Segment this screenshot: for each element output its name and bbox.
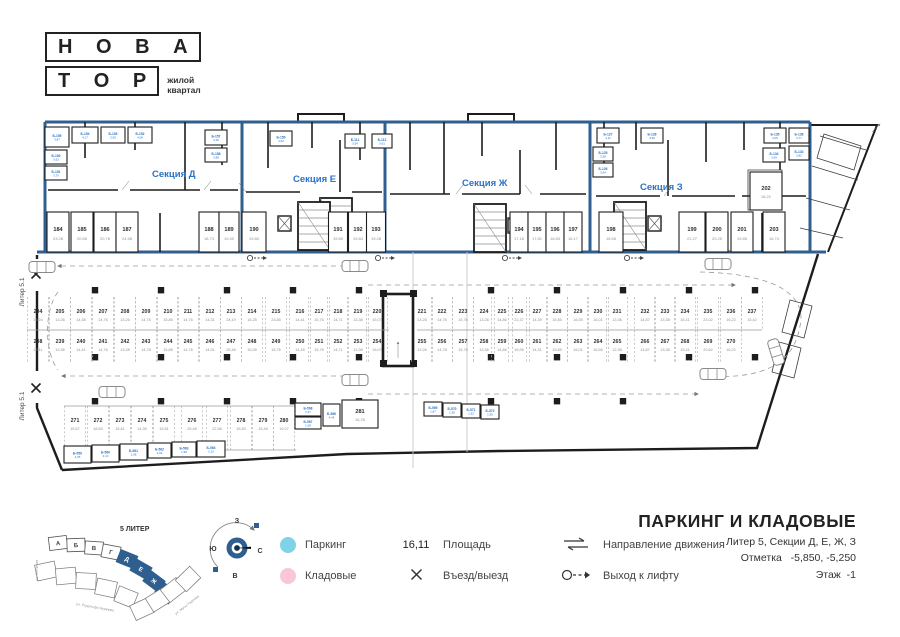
svg-text:254: 254 [373, 339, 382, 345]
parking-stall-245[interactable]: 24514,76 [178, 330, 199, 363]
svg-text:206: 206 [77, 309, 86, 315]
storage-room-281[interactable]: 28116,25 [342, 400, 378, 428]
svg-text:196: 196 [550, 227, 559, 233]
svg-text:244: 244 [164, 339, 173, 345]
parking-stall-233[interactable]: 23313,38 [655, 297, 676, 330]
svg-text:251: 251 [315, 339, 324, 345]
svg-text:14,76: 14,76 [437, 348, 447, 352]
svg-text:240: 240 [77, 339, 86, 345]
svg-text:256: 256 [438, 339, 447, 345]
svg-text:13,26: 13,26 [120, 318, 130, 322]
svg-text:15,24: 15,24 [33, 318, 43, 322]
parking-stall-257[interactable]: 25715,76 [453, 330, 474, 363]
svg-text:234: 234 [681, 309, 690, 315]
svg-text:1,92: 1,92 [468, 412, 474, 416]
svg-text:16,22: 16,22 [726, 348, 736, 352]
storage-room-201[interactable]: 20119,85 [731, 212, 753, 252]
svg-text:230: 230 [594, 309, 603, 315]
cellar-room-Б-572[interactable]: Б-5721,95 [481, 405, 499, 419]
cellar-room-Б-560[interactable]: Б-5602,10 [92, 445, 119, 462]
legend-storage: Кладовые [280, 567, 385, 585]
svg-text:14,71: 14,71 [333, 318, 343, 322]
svg-text:242: 242 [121, 339, 130, 345]
cellar-room-Б-111[interactable]: Б-1113,54 [345, 134, 365, 148]
svg-text:189: 189 [224, 227, 233, 233]
svg-text:25,48: 25,48 [187, 427, 197, 431]
svg-text:213: 213 [227, 309, 236, 315]
parking-stall-278[interactable]: 27815,83 [231, 406, 252, 450]
cellar-room-Б-126[interactable]: Б-1263,64 [593, 163, 613, 177]
svg-text:210: 210 [164, 309, 173, 315]
storage-room-189[interactable]: 18919,40 [219, 212, 239, 252]
svg-text:264: 264 [594, 339, 603, 345]
svg-text:19,28: 19,28 [371, 236, 382, 241]
svg-text:16,55: 16,55 [593, 348, 603, 352]
storage-dot-icon [280, 568, 296, 584]
compass: З Ю С В [209, 518, 262, 580]
legend-parking: Паркинг [280, 536, 385, 554]
svg-text:4,05: 4,05 [772, 136, 778, 140]
parking-stall-263[interactable]: 26316,01 [568, 330, 589, 363]
storage-room-190[interactable]: 19019,80 [242, 212, 266, 252]
cellar-room-Б-155[interactable]: Б-1553,87 [45, 127, 69, 147]
entry-cross-icon [32, 384, 41, 393]
svg-text:14,86: 14,86 [497, 318, 507, 322]
svg-text:192: 192 [353, 227, 362, 233]
svg-text:275: 275 [160, 418, 169, 424]
parking-stall-221[interactable]: 22113,26 [412, 297, 433, 330]
svg-text:23,02: 23,02 [703, 318, 713, 322]
cellar-room-Б-569[interactable]: Б-5691,87 [424, 402, 442, 416]
svg-text:198: 198 [606, 227, 615, 233]
svg-text:15,07: 15,07 [372, 318, 382, 322]
cellar-room-Б-134[interactable]: Б-1343,69 [763, 148, 785, 162]
svg-text:247: 247 [227, 339, 236, 345]
svg-text:231: 231 [613, 309, 622, 315]
svg-text:245: 245 [184, 339, 193, 345]
storage-room-198[interactable]: 19816,55 [599, 212, 623, 252]
svg-text:278: 278 [237, 418, 246, 424]
legend-parking-label: Паркинг [305, 539, 346, 551]
stair-core [298, 202, 330, 250]
svg-text:207: 207 [99, 309, 108, 315]
svg-text:186: 186 [100, 227, 109, 233]
parking-stall-269[interactable]: 26920,62 [698, 330, 719, 363]
svg-text:249: 249 [272, 339, 281, 345]
svg-text:216: 216 [296, 309, 305, 315]
storage-room-188[interactable]: 18818,73 [199, 212, 219, 252]
svg-text:194: 194 [514, 227, 524, 233]
svg-text:16,01: 16,01 [593, 318, 603, 322]
svg-text:1,90: 1,90 [449, 411, 455, 415]
svg-text:19,80: 19,80 [249, 236, 260, 241]
svg-text:228: 228 [553, 309, 562, 315]
storage-room-196[interactable]: 19616,83 [546, 212, 564, 252]
parking-stall-248[interactable]: 24815,05 [242, 330, 263, 363]
svg-text:15,05: 15,05 [247, 348, 257, 352]
storage-room-187[interactable]: 18724,58 [116, 212, 138, 252]
parking-stall-271[interactable]: 27115,67 [65, 406, 86, 450]
svg-text:209: 209 [142, 309, 151, 315]
lift-exit-marks [247, 255, 644, 260]
svg-text:232: 232 [641, 309, 650, 315]
svg-text:272: 272 [94, 418, 103, 424]
svg-text:13,11: 13,11 [33, 348, 42, 352]
svg-text:14,76: 14,76 [183, 348, 193, 352]
svg-text:14,51: 14,51 [205, 348, 215, 352]
cellar-room-Б-570[interactable]: Б-5701,90 [443, 403, 461, 417]
parking-stall-211[interactable]: 21114,76 [178, 297, 199, 330]
svg-text:226: 226 [515, 309, 524, 315]
parking-stall-267[interactable]: 26713,38 [655, 330, 676, 363]
parking-stall-217[interactable]: 21715,76 [309, 297, 330, 330]
cellar-room-Б-563[interactable]: Б-5631,98 [172, 442, 196, 457]
cellar-room-Б-128[interactable]: Б-1283,96 [641, 128, 663, 143]
storage-room-197[interactable]: 19716,17 [564, 212, 582, 252]
page: Н О В А Т О Р жилойквартал [0, 0, 900, 637]
svg-text:1,97: 1,97 [305, 410, 311, 414]
svg-text:204: 204 [34, 309, 43, 315]
storage-room-185[interactable]: 18520,85 [71, 212, 93, 252]
svg-text:215: 215 [272, 309, 281, 315]
parking-stall-255[interactable]: 25513,26 [412, 330, 433, 363]
svg-text:15,76: 15,76 [271, 348, 281, 352]
parking-stall-266[interactable]: 26614,87 [635, 330, 656, 363]
cellar-room-Б-133[interactable]: Б-1333,82 [789, 146, 809, 160]
svg-text:13,36: 13,36 [612, 318, 622, 322]
svg-text:267: 267 [661, 339, 670, 345]
svg-text:19,07: 19,07 [279, 427, 289, 431]
parking-stall-213[interactable]: 21324,19 [221, 297, 242, 330]
cellar-room-Б-159[interactable]: Б-1594,02 [270, 131, 292, 146]
cellar-room-Б-158[interactable]: Б-1583,88 [205, 148, 227, 162]
svg-text:13,26: 13,26 [479, 318, 489, 322]
svg-text:18,83: 18,83 [93, 427, 103, 431]
svg-text:4,25: 4,25 [213, 138, 219, 142]
svg-text:15,76: 15,76 [314, 318, 324, 322]
parking-stall-280[interactable]: 28019,07 [274, 406, 295, 450]
svg-text:22,58: 22,58 [212, 427, 222, 431]
cellar-room-Б-152[interactable]: Б-1524,08 [128, 127, 152, 143]
cellar-room-Б-153[interactable]: Б-1533,95 [101, 127, 125, 143]
storage-room-192[interactable]: 19219,84 [349, 212, 368, 252]
svg-text:14,71: 14,71 [333, 348, 343, 352]
cellar-room-Б-571[interactable]: Б-5711,92 [462, 404, 480, 418]
parking-stall-252[interactable]: 25214,71 [328, 330, 349, 363]
svg-text:14,41: 14,41 [295, 318, 305, 322]
svg-text:258: 258 [480, 339, 489, 345]
svg-text:2,08: 2,08 [131, 453, 137, 457]
parking-stall-231[interactable]: 23113,36 [607, 297, 628, 330]
svg-text:17,16: 17,16 [514, 236, 525, 241]
svg-text:22,37: 22,37 [514, 318, 524, 322]
parking-stall-235[interactable]: 23523,02 [698, 297, 719, 330]
svg-text:14,76: 14,76 [98, 348, 108, 352]
svg-text:14,87: 14,87 [640, 318, 650, 322]
svg-text:203: 203 [769, 227, 778, 233]
svg-text:238: 238 [34, 339, 43, 345]
svg-text:16,01: 16,01 [573, 348, 583, 352]
minimap-section-В: В [85, 541, 104, 555]
liter-edge-label: Литер 5.1 [19, 391, 26, 420]
legend-area: 16,11 Площадь [395, 536, 545, 554]
svg-text:276: 276 [188, 418, 197, 424]
parking-stall-219[interactable]: 21913,38 [348, 297, 369, 330]
svg-text:1,68: 1,68 [305, 424, 311, 428]
elevator-shaft [648, 216, 661, 231]
parking-stall-240[interactable]: 24014,41 [71, 330, 92, 363]
svg-text:266: 266 [641, 339, 650, 345]
street-label: ул. Мусы Гареева [174, 594, 200, 615]
svg-text:15,42: 15,42 [747, 318, 757, 322]
svg-text:225: 225 [498, 309, 507, 315]
svg-text:200: 200 [712, 227, 721, 233]
svg-text:19,85: 19,85 [333, 236, 344, 241]
parking-stall-279[interactable]: 27915,48 [253, 406, 274, 450]
cellar-room-Б-568[interactable]: Б-5681,97 [295, 403, 321, 416]
svg-text:13,38: 13,38 [479, 348, 489, 352]
parking-stall-247[interactable]: 24725,46 [221, 330, 242, 363]
compass-south: Ю [209, 546, 216, 553]
cellar-room-Б-125[interactable]: Б-1253,58 [593, 147, 613, 161]
svg-text:13,38: 13,38 [353, 318, 363, 322]
parking-stall-249[interactable]: 24915,76 [266, 330, 287, 363]
direction-arrows-icon [555, 536, 597, 555]
parking-stall-256[interactable]: 25614,76 [432, 330, 453, 363]
street-label: ул. Лётчиков [35, 560, 39, 581]
svg-text:15,81: 15,81 [159, 427, 169, 431]
svg-text:15,76: 15,76 [458, 348, 468, 352]
cellar-room-Б-154[interactable]: Б-1544,17 [72, 127, 98, 143]
svg-text:14,76: 14,76 [98, 318, 108, 322]
parking-stall-239[interactable]: 23913,36 [50, 330, 71, 363]
storage-room-186[interactable]: 18620,78 [94, 212, 116, 252]
svg-text:15,67: 15,67 [70, 427, 80, 431]
svg-text:212: 212 [206, 309, 215, 315]
svg-text:3,70: 3,70 [53, 174, 59, 178]
svg-text:24,19: 24,19 [226, 318, 236, 322]
svg-text:3,62: 3,62 [53, 158, 59, 162]
entry-cross-icon [395, 568, 437, 584]
svg-text:219: 219 [354, 309, 363, 315]
parking-stall-236[interactable]: 23616,22 [721, 297, 742, 330]
svg-text:14,86: 14,86 [497, 348, 507, 352]
svg-text:255: 255 [418, 339, 427, 345]
minimap: АБВГДЕЖЗ 5 ЛИТЕР ул. Лётчиков ул. Рудоль… [28, 503, 268, 628]
svg-text:14,76: 14,76 [437, 318, 447, 322]
svg-text:188: 188 [204, 227, 213, 233]
parking-stall-223[interactable]: 22315,76 [453, 297, 474, 330]
svg-text:16,17: 16,17 [568, 236, 579, 241]
svg-text:221: 221 [418, 309, 427, 315]
parking-stall-264[interactable]: 26416,55 [588, 330, 609, 363]
svg-text:20,85: 20,85 [77, 236, 88, 241]
svg-text:248: 248 [248, 339, 257, 345]
svg-text:191: 191 [333, 227, 342, 233]
svg-text:17,81: 17,81 [532, 236, 543, 241]
liter-edge-label: Литер 5.1 [19, 277, 26, 306]
storage-room-184[interactable]: 18423,28 [47, 212, 69, 252]
parking-stall-268[interactable]: 26815,41 [675, 330, 696, 363]
cellar-room-Б-136[interactable]: Б-1363,77 [789, 128, 809, 143]
minimap-building [95, 578, 118, 598]
parking-stall-214[interactable]: 21415,25 [242, 297, 263, 330]
svg-text:19,84: 19,84 [353, 236, 364, 241]
svg-text:16,95: 16,95 [514, 348, 524, 352]
svg-text:12,38: 12,38 [612, 348, 622, 352]
parking-stall-230[interactable]: 23016,01 [588, 297, 609, 330]
svg-text:224: 224 [480, 309, 489, 315]
svg-text:14,35: 14,35 [137, 427, 147, 431]
cellar-room-Б-150[interactable]: Б-1503,62 [45, 150, 67, 164]
svg-text:14,45: 14,45 [295, 348, 305, 352]
parking-stall-234[interactable]: 23415,41 [675, 297, 696, 330]
svg-text:262: 262 [553, 339, 562, 345]
svg-text:214: 214 [248, 309, 257, 315]
parking-stall-216[interactable]: 21614,41 [290, 297, 311, 330]
svg-text:257: 257 [459, 339, 468, 345]
svg-text:218: 218 [334, 309, 343, 315]
svg-text:3,95: 3,95 [110, 136, 116, 140]
svg-text:14,87: 14,87 [640, 348, 650, 352]
svg-text:236: 236 [727, 309, 736, 315]
title-elevation-line: Отметка -5,850, -5,250 [638, 552, 856, 565]
svg-text:1,95: 1,95 [487, 413, 493, 417]
svg-text:16,21: 16,21 [761, 194, 772, 199]
svg-text:235: 235 [704, 309, 713, 315]
parking-stall-229[interactable]: 22916,55 [568, 297, 589, 330]
cellar-room-Б-127[interactable]: Б-1274,11 [597, 128, 619, 143]
legend-entry-label: Въезд/выезд [443, 570, 508, 582]
svg-text:15,81: 15,81 [115, 427, 125, 431]
svg-text:14,76: 14,76 [183, 318, 193, 322]
svg-text:237: 237 [748, 309, 757, 315]
svg-text:3,96: 3,96 [649, 136, 655, 140]
parking-stall-243[interactable]: 24314,76 [136, 330, 157, 363]
svg-text:14,31: 14,31 [205, 318, 215, 322]
svg-text:4,11: 4,11 [605, 136, 611, 140]
svg-text:260: 260 [515, 339, 524, 345]
svg-text:4,02: 4,02 [278, 139, 284, 143]
parking-stall-206[interactable]: 20614,36 [71, 297, 92, 330]
parking-stall-218[interactable]: 21814,71 [328, 297, 349, 330]
svg-text:3,82: 3,82 [796, 154, 802, 158]
svg-text:233: 233 [661, 309, 670, 315]
storage-room-199[interactable]: 19921,27 [679, 212, 705, 252]
storage-room-203[interactable]: 20316,74 [763, 212, 785, 252]
svg-text:279: 279 [259, 418, 268, 424]
svg-text:15,41: 15,41 [680, 348, 690, 352]
cellar-room-Б-566[interactable]: Б-5664,46 [323, 404, 340, 426]
svg-text:15,07: 15,07 [372, 348, 382, 352]
parking-stall-270[interactable]: 27016,22 [721, 330, 742, 363]
parking-stall-242[interactable]: 24213,38 [115, 330, 136, 363]
lift-exit-icon [375, 255, 395, 260]
svg-text:15,85: 15,85 [552, 318, 562, 322]
storage-room-191[interactable]: 19119,85 [329, 212, 348, 252]
svg-text:205: 205 [56, 309, 65, 315]
parking-stall-222[interactable]: 22214,76 [432, 297, 453, 330]
compass-west: З [235, 518, 240, 525]
svg-text:4,08: 4,08 [137, 136, 143, 140]
svg-text:263: 263 [574, 339, 583, 345]
cellar-room-Б-559[interactable]: Б-5592,05 [64, 446, 91, 463]
parking-stall-208[interactable]: 20813,26 [115, 297, 136, 330]
storage-room-195[interactable]: 19517,81 [528, 212, 546, 252]
svg-text:13,38: 13,38 [660, 348, 670, 352]
elevator-shaft [278, 216, 291, 231]
page-title: ПАРКИНГ И КЛАДОВЫЕ [638, 511, 856, 532]
parking-stall-272[interactable]: 27218,83 [88, 406, 109, 450]
svg-text:211: 211 [184, 309, 192, 315]
svg-text:16,74: 16,74 [769, 236, 780, 241]
svg-text:19,85: 19,85 [737, 236, 748, 241]
svg-text:13,26: 13,26 [417, 318, 427, 322]
parking-stall-228[interactable]: 22815,85 [547, 297, 568, 330]
parking-stall-212[interactable]: 21214,31 [200, 297, 221, 330]
street-label: ул. Рудольфа Нуреева [76, 602, 114, 613]
parking-stall-237[interactable]: 23715,42 [742, 297, 763, 330]
svg-text:3,77: 3,77 [796, 136, 802, 140]
cellar-room-Б-562[interactable]: Б-5622,02 [148, 443, 171, 458]
section-label-zh: Секция Ж [462, 178, 508, 189]
section-label-z: Секция З [640, 182, 683, 193]
svg-text:3,64: 3,64 [600, 171, 606, 175]
svg-text:3,87: 3,87 [54, 138, 60, 142]
storage-room-202[interactable]: 20216,21 [750, 172, 782, 210]
svg-text:190: 190 [249, 227, 258, 233]
svg-text:246: 246 [206, 339, 215, 345]
svg-text:199: 199 [687, 227, 696, 233]
cellar-room-Б-567[interactable]: Б-5671,68 [295, 417, 321, 429]
svg-text:16,83: 16,83 [550, 236, 561, 241]
svg-text:16,55: 16,55 [573, 318, 583, 322]
svg-text:15,85: 15,85 [552, 348, 562, 352]
svg-text:201: 201 [737, 227, 746, 233]
svg-text:13,38: 13,38 [120, 348, 130, 352]
lift-exit-icon [555, 568, 597, 585]
storage-room-193[interactable]: 19319,28 [367, 212, 386, 252]
parking-stall-209[interactable]: 20914,76 [136, 297, 157, 330]
section-label-e: Секция Е [293, 174, 336, 185]
svg-text:208: 208 [121, 309, 130, 315]
svg-text:14,76: 14,76 [141, 348, 151, 352]
parking-stall-210[interactable]: 21015,85 [158, 297, 179, 330]
storage-room-200[interactable]: 20020,25 [706, 212, 728, 252]
svg-text:269: 269 [704, 339, 713, 345]
parking-stall-246[interactable]: 24614,51 [200, 330, 221, 363]
cellar-room-Б-151[interactable]: Б-1513,70 [45, 166, 67, 180]
cellar-room-Б-157[interactable]: Б-1574,25 [205, 130, 227, 145]
storage-room-194[interactable]: 19417,16 [510, 212, 528, 252]
svg-text:14,36: 14,36 [76, 318, 86, 322]
cellar-room-Б-112[interactable]: Б-1123,61 [372, 134, 392, 148]
svg-text:271: 271 [71, 418, 80, 424]
svg-text:195: 195 [532, 227, 541, 233]
parking-stall-251[interactable]: 25115,76 [309, 330, 330, 363]
cellar-room-Б-135[interactable]: Б-1354,05 [764, 128, 786, 143]
cellar-room-Б-564[interactable]: Б-5642,15 [197, 441, 225, 457]
parking-stall-207[interactable]: 20714,76 [93, 297, 114, 330]
parking-stall-215[interactable]: 21523,85 [266, 297, 287, 330]
svg-text:280: 280 [280, 418, 289, 424]
cellar-room-Б-561[interactable]: Б-5612,08 [120, 444, 147, 460]
parking-stall-273[interactable]: 27315,81 [110, 406, 131, 450]
svg-text:3,69: 3,69 [771, 156, 777, 160]
svg-text:24,58: 24,58 [122, 236, 133, 241]
parking-stall-232[interactable]: 23214,87 [635, 297, 656, 330]
svg-text:229: 229 [574, 309, 583, 315]
